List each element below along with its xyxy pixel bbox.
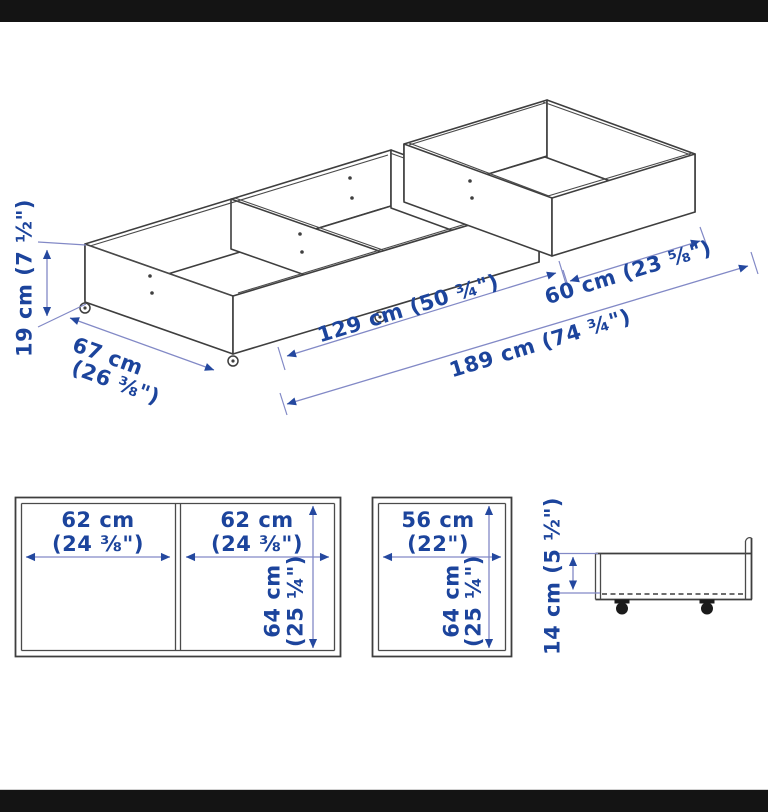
diagram-canvas: 19 cm (7 ½") 67 cm (26 ⅜") 129 cm (50 ¾"… [0,22,768,790]
top-view-large-box: 62 cm (24 ⅜") 62 cm (24 ⅜") 64 cm (25 ¼"… [16,498,341,657]
small-box-depth-label-line2: (25 ¼") [461,555,485,647]
bottom-letterbox-bar [0,789,768,812]
side-view-height-label: 14 cm (5 ½") [540,497,564,655]
small-box-width-label-line2: (22") [407,532,469,556]
small-box-width-label-line1: 56 cm [401,508,474,532]
compartment1-width-label-line2: (24 ⅜") [52,532,144,556]
iso-total-length-label: 189 cm (74 ¾") [447,304,634,382]
large-box-depth-label-line1: 64 cm [260,564,284,637]
screenshot-root: 19 cm (7 ½") 67 cm (26 ⅜") 129 cm (50 ¾"… [0,0,768,812]
iso-height-dimension: 19 cm (7 ½") [12,199,86,357]
large-box-depth-label-line2: (25 ¼") [283,555,307,647]
compartment2-width-label-line2: (24 ⅜") [211,532,303,556]
top-view-small-box: 56 cm (22") 64 cm (25 ¼") [373,498,512,657]
compartment1-width-label-line1: 62 cm [61,508,134,532]
top-letterbox-bar [0,0,768,23]
isometric-view: 19 cm (7 ½") 67 cm (26 ⅜") 129 cm (50 ¾"… [12,100,758,415]
dimension-diagram: 19 cm (7 ½") 67 cm (26 ⅜") 129 cm (50 ¾"… [0,22,768,790]
side-rail-flange [746,538,752,600]
small-box-depth-label-line1: 64 cm [439,564,463,637]
iso-height-label: 19 cm (7 ½") [12,199,36,357]
side-view: 14 cm (5 ½") [540,497,752,655]
compartment2-width-label-line1: 62 cm [220,508,293,532]
caster-wheel [615,600,715,615]
